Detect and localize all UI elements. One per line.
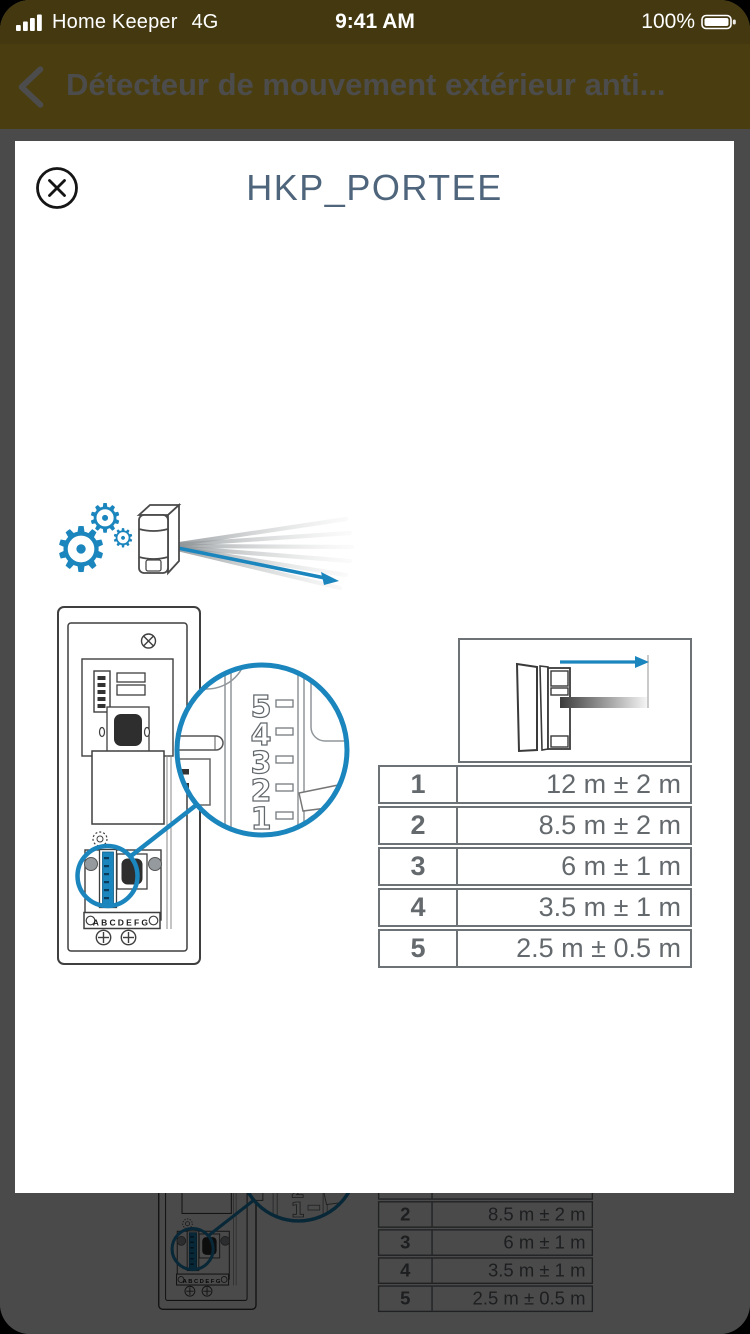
range-cell: 2.5 m ± 0.5 m bbox=[433, 1287, 592, 1311]
level-cell: 2 bbox=[380, 808, 458, 843]
range-cell: 6 m ± 1 m bbox=[433, 1231, 592, 1255]
table-row: 5 2.5 m ± 0.5 m bbox=[378, 1285, 593, 1312]
terminal-labels: ABCDEFG bbox=[183, 1279, 222, 1285]
back-chevron-icon[interactable] bbox=[14, 64, 48, 110]
range-table: 1 12 m ± 2 m 2 8.5 m ± 2 m 3 6 m ± 1 m 4… bbox=[378, 638, 692, 968]
status-bar: Home Keeper 4G 9:41 AM 100% bbox=[0, 0, 750, 44]
level-cell: 3 bbox=[380, 849, 458, 884]
table-row: 3 6 m ± 1 m bbox=[378, 1229, 593, 1256]
level-cell: 2 bbox=[379, 1202, 432, 1226]
hkp-portee-dialog: HKP_PORTEE bbox=[15, 141, 734, 1193]
range-level-digits: 5 4 3 2 1 bbox=[251, 690, 272, 837]
table-row: 4 3.5 m ± 1 m bbox=[378, 888, 692, 927]
level-cell: 4 bbox=[380, 890, 458, 925]
terminal-labels: ABCDEFG bbox=[93, 918, 150, 928]
screw-icon bbox=[142, 634, 156, 648]
phone-screen: ⚙ ⚙ ⚙ bbox=[0, 0, 750, 1334]
top-bar: Home Keeper 4G 9:41 AM 100% Détecteur de… bbox=[0, 0, 750, 129]
range-cell: 8.5 m ± 2 m bbox=[433, 1202, 592, 1226]
table-row: 1 12 m ± 2 m bbox=[378, 765, 692, 804]
range-cell: 8.5 m ± 2 m bbox=[458, 808, 690, 843]
range-cell: 2.5 m ± 0.5 m bbox=[458, 931, 690, 966]
portee-figure: ⚙ ⚙ ⚙ bbox=[15, 141, 734, 1193]
svg-text:1: 1 bbox=[251, 802, 272, 837]
tamper-button bbox=[114, 714, 142, 746]
level-cell: 3 bbox=[379, 1231, 432, 1255]
level-cell: 1 bbox=[380, 767, 458, 802]
table-row: 5 2.5 m ± 0.5 m bbox=[378, 929, 692, 968]
nav-bar: Détecteur de mouvement extérieur anti... bbox=[0, 44, 750, 129]
svg-text:⚙: ⚙ bbox=[111, 524, 134, 554]
level-cell: 5 bbox=[379, 1287, 432, 1311]
page-title: Détecteur de mouvement extérieur anti... bbox=[66, 44, 740, 126]
detector-internals-diagram: ABCDEFG bbox=[55, 599, 355, 973]
fading-beam bbox=[560, 697, 648, 708]
table-row: 4 3.5 m ± 1 m bbox=[378, 1257, 593, 1284]
battery-icon bbox=[701, 13, 738, 31]
range-measure-image bbox=[458, 638, 692, 763]
motion-sensor-icon bbox=[139, 505, 179, 573]
table-row: 2 8.5 m ± 2 m bbox=[378, 806, 692, 845]
range-cell: 3.5 m ± 1 m bbox=[458, 890, 690, 925]
range-cell: 3.5 m ± 1 m bbox=[433, 1259, 592, 1283]
table-row: 3 6 m ± 1 m bbox=[378, 847, 692, 886]
level-cell: 4 bbox=[379, 1259, 432, 1283]
range-cell: 12 m ± 2 m bbox=[458, 767, 690, 802]
svg-text:1: 1 bbox=[291, 1198, 305, 1222]
battery-percent: 100% bbox=[641, 10, 695, 34]
table-row: 2 8.5 m ± 2 m bbox=[378, 1201, 593, 1228]
range-cell: 6 m ± 1 m bbox=[458, 849, 690, 884]
clock: 9:41 AM bbox=[0, 10, 750, 34]
gears-icon: ⚙ ⚙ ⚙ bbox=[53, 496, 134, 586]
level-cell: 5 bbox=[380, 931, 458, 966]
settings-range-icon: ⚙ ⚙ ⚙ bbox=[53, 491, 365, 609]
